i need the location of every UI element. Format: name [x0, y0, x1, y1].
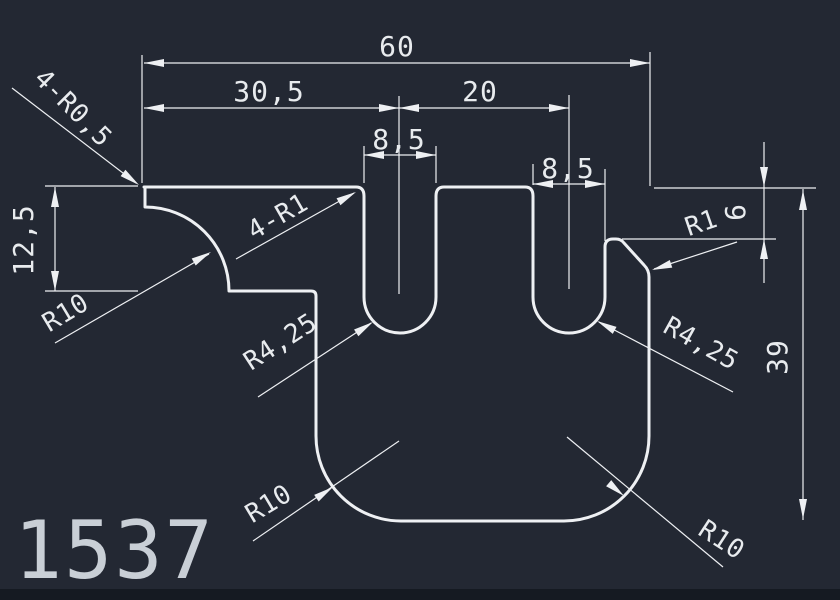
dim-slot1-center-offset: 30,5: [233, 75, 304, 108]
dim-slot1-width: 8,5: [372, 123, 426, 156]
dim-total-height: 39: [761, 339, 794, 375]
dim-slot2-width: 8,5: [541, 152, 595, 185]
cad-drawing-canvas[interactable]: 60 30,5 20 8,5 8,5 12,5 6 39 4-R0,5 R10 …: [0, 0, 840, 600]
dim-total-width: 60: [379, 30, 415, 63]
dim-left-step-depth: 12,5: [7, 204, 40, 275]
dim-right-shoulder-drop: 6: [719, 203, 752, 221]
dim-slot-center-spacing: 20: [462, 75, 498, 108]
part-number: 1537: [14, 504, 215, 597]
cad-viewport: 60 30,5 20 8,5 8,5 12,5 6 39 4-R0,5 R10 …: [0, 0, 840, 600]
